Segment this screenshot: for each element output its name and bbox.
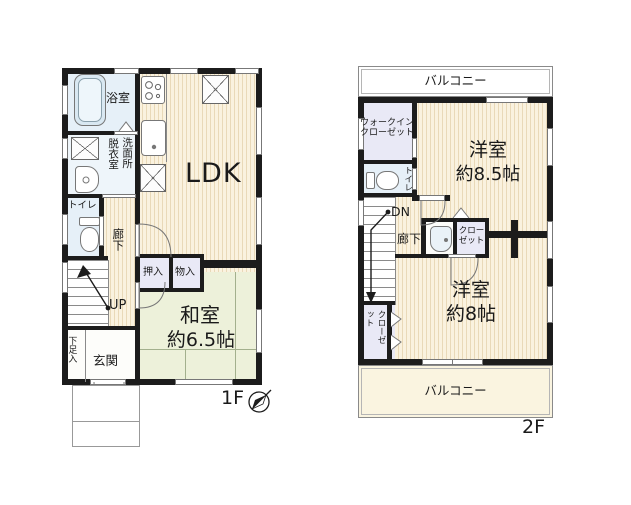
window: [486, 97, 528, 103]
2f-balcony-top: バルコニー: [358, 66, 553, 97]
folding-door-icon: [390, 311, 403, 328]
folding-door-icon: [390, 334, 403, 351]
wall: [358, 193, 414, 197]
closet-mid-line2: ゼット: [459, 237, 485, 247]
floor-plan-screenshot: 浴室 脱衣室 洗面所 トイレ 廊下 UP 押入 物入 LDK 和室 約6.5帖 …: [0, 0, 631, 505]
balcony-bottom-label: バルコニー: [359, 366, 552, 417]
folding-door-icon: [452, 207, 470, 219]
stairs-down-label: DN: [391, 205, 410, 219]
room-label-room-b-size: 約8帖: [429, 304, 513, 326]
room-label-room-a-size: 約8.5帖: [443, 165, 533, 186]
wall: [487, 231, 553, 238]
wic-line1: ウォークイン: [360, 118, 414, 128]
wall: [511, 220, 518, 258]
door-arc: [419, 200, 447, 227]
window: [547, 221, 553, 259]
window: [422, 359, 453, 365]
wic-line2: クローゼット: [360, 128, 414, 138]
floor-plan-2f: バルコニー バルコニー: [0, 0, 631, 505]
toilet-icon: [376, 171, 399, 190]
washbasin-icon: [430, 226, 452, 252]
room-label-room-b: 洋室: [433, 280, 509, 302]
room-label-closet-mid: クロー ゼット: [456, 227, 487, 247]
window: [452, 359, 483, 365]
window: [547, 286, 553, 323]
window: [547, 128, 553, 166]
room-label-hall-2f: 廊下: [397, 233, 421, 247]
balcony-top-label: バルコニー: [359, 67, 552, 96]
room-label-wic: ウォークイン クローゼット: [358, 118, 416, 139]
room-label-room-a: 洋室: [450, 140, 526, 162]
floor-label-2f: 2F: [522, 417, 545, 439]
2f-balcony-bottom: バルコニー: [358, 365, 553, 418]
door-opening: [412, 138, 417, 158]
wall: [358, 160, 414, 164]
toilet-icon: [366, 172, 375, 189]
room-label-closet-left: クローゼット: [361, 310, 387, 350]
room-label-toilet-2f: トイレ: [402, 166, 412, 192]
